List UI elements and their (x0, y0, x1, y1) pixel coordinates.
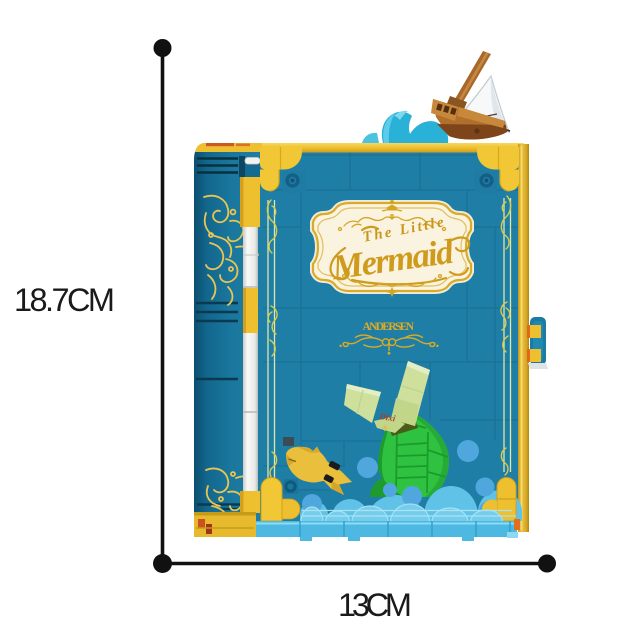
svg-text:ANDERSEN: ANDERSEN (363, 321, 416, 333)
svg-text:18.7CM: 18.7CM (14, 282, 115, 318)
svg-text:13CM: 13CM (338, 587, 412, 623)
